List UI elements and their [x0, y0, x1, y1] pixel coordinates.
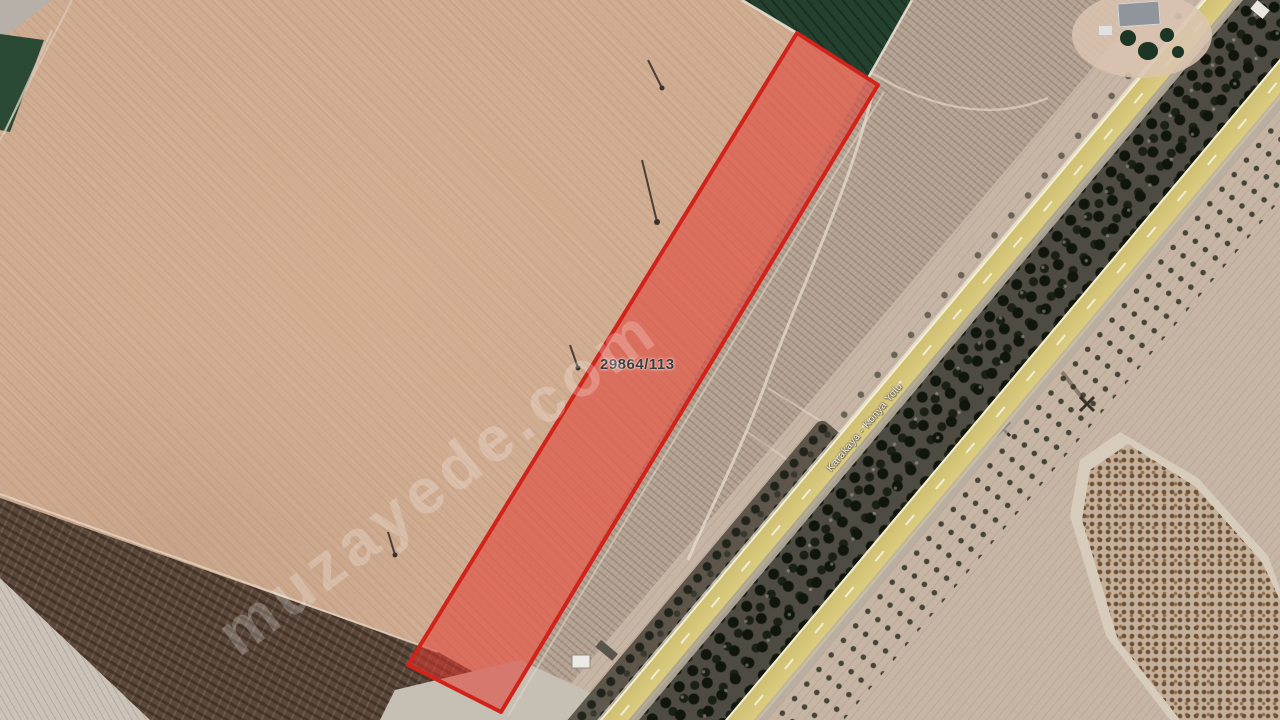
- parcel-label: 29864/113: [600, 356, 700, 373]
- satellite-map: 29864/113 Karakaya - Konya Yolu muzayede…: [0, 0, 1280, 720]
